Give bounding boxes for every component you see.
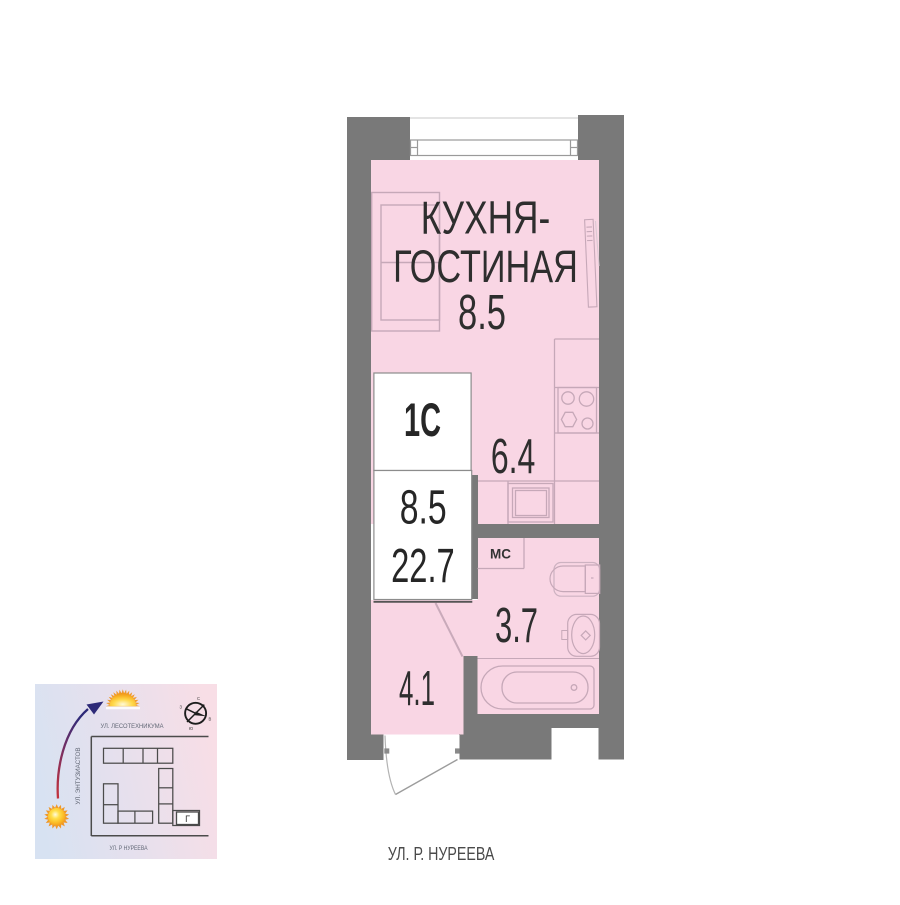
svg-text:КУХНЯ-: КУХНЯ- <box>421 192 551 244</box>
svg-text:3.7: 3.7 <box>495 599 538 653</box>
svg-text:22.7: 22.7 <box>391 540 455 593</box>
svg-text:С: С <box>197 696 200 701</box>
svg-text:6.4: 6.4 <box>491 430 536 484</box>
svg-text:8.5: 8.5 <box>458 286 506 340</box>
svg-text:УЛ. Р. НУРЕЕВА: УЛ. Р. НУРЕЕВА <box>388 844 495 864</box>
svg-text:МС: МС <box>490 546 511 562</box>
svg-text:УЛ. ЛЕСОТЕХНИКУМА: УЛ. ЛЕСОТЕХНИКУМА <box>101 723 165 730</box>
svg-text:ГОСТИНАЯ: ГОСТИНАЯ <box>393 241 578 292</box>
svg-text:В: В <box>209 717 212 722</box>
svg-text:1С: 1С <box>404 393 441 446</box>
svg-text:Г: Г <box>185 814 190 824</box>
svg-text:8.5: 8.5 <box>400 482 447 535</box>
svg-text:4.1: 4.1 <box>399 662 435 716</box>
svg-text:УЛ. Р НУРЕЕВА: УЛ. Р НУРЕЕВА <box>110 845 149 852</box>
svg-text:УЛ. ЭНТУЗИАСТОВ: УЛ. ЭНТУЗИАСТОВ <box>75 748 82 805</box>
